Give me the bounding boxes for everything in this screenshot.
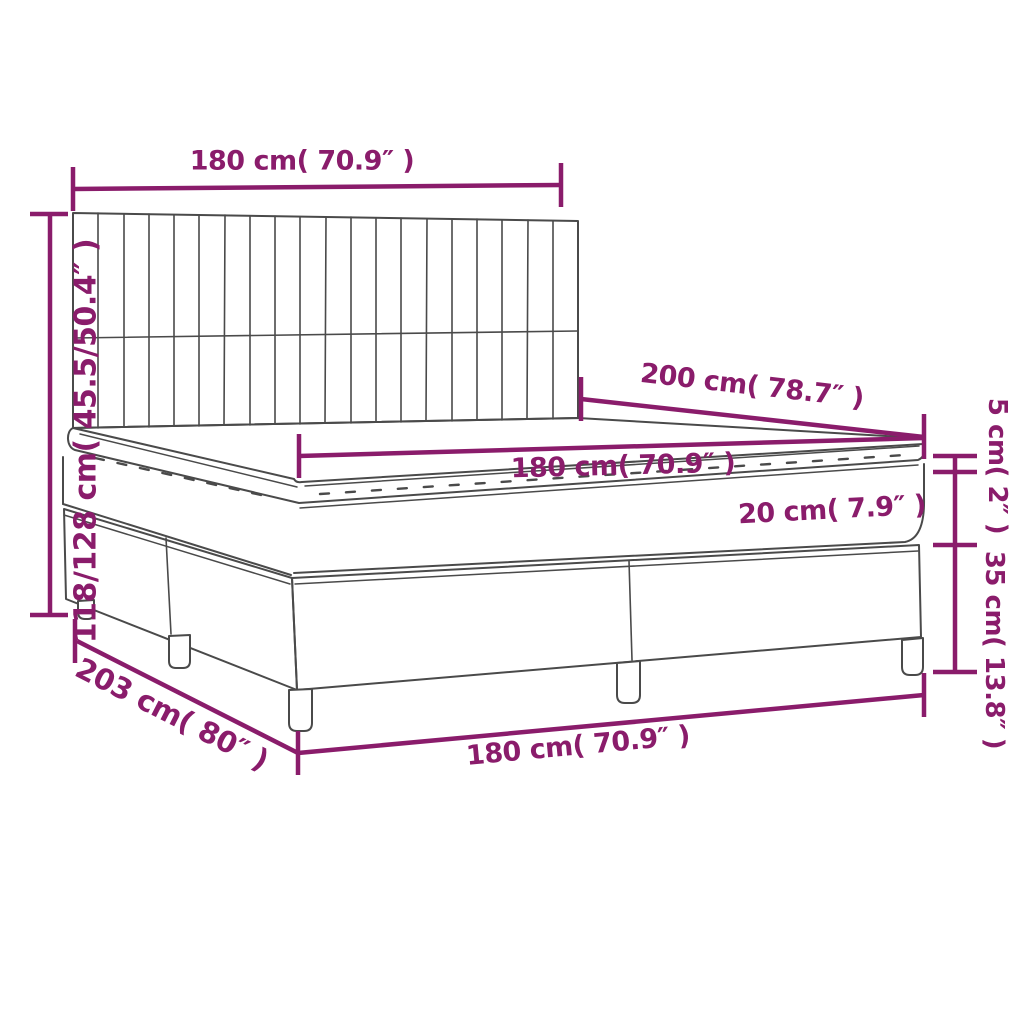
dim-line-right-stack: [933, 456, 977, 672]
bed-leg: [169, 635, 190, 668]
topper-stitching-left: [95, 458, 270, 497]
dim-label-bed-height: 118/128 cm( 45.5/50.4″ ): [69, 239, 104, 643]
dim-label-base-height: 35 cm( 13.8″ ): [979, 551, 1009, 749]
headboard-channels: [98, 213, 553, 428]
bed-leg: [289, 689, 312, 731]
base-left-seam: [166, 538, 171, 634]
bed-leg: [902, 638, 923, 675]
dim-label-topper-thickness: 5 cm( 2″ ): [982, 398, 1012, 534]
dim-label-mattress-width: 180 cm( 70.9″ ): [510, 448, 735, 485]
bed-dimension-diagram: 180 cm( 70.9″ ) 118/128 cm( 45.5/50.4″ )…: [0, 0, 1024, 1024]
base-front-seam: [629, 561, 632, 660]
dim-line-bed-height: [30, 214, 68, 615]
dim-label-headboard-width: 180 cm( 70.9″ ): [190, 146, 415, 177]
bed-leg: [617, 661, 640, 703]
topper-front-bottom: [68, 428, 925, 503]
